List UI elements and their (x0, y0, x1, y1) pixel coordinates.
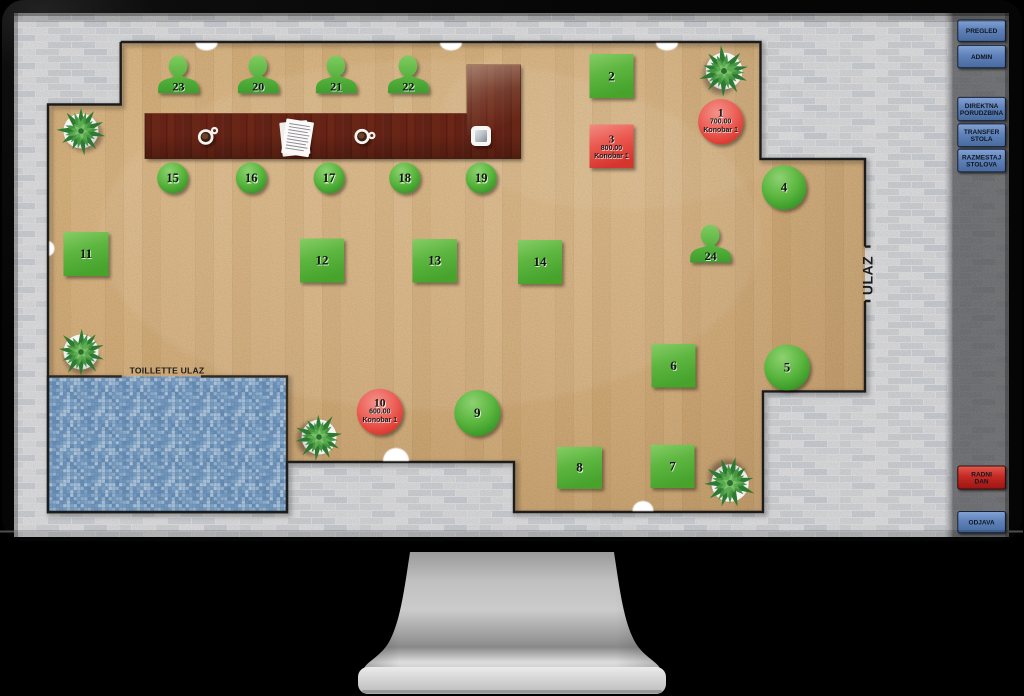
svg-text:8: 8 (576, 460, 583, 475)
svg-text:800.00: 800.00 (601, 145, 623, 152)
svg-text:RAZMESTAJ: RAZMESTAJ (962, 154, 1002, 161)
svg-text:STOLA: STOLA (971, 136, 993, 143)
svg-text:ULAZ: ULAZ (860, 256, 876, 295)
svg-text:18: 18 (398, 171, 411, 185)
svg-text:PORUDZBINA: PORUDZBINA (960, 110, 1004, 117)
svg-text:Konobar 1: Konobar 1 (703, 127, 738, 134)
svg-text:700.00: 700.00 (710, 118, 732, 125)
svg-text:TRANSFER: TRANSFER (964, 129, 1000, 136)
svg-text:19: 19 (475, 171, 488, 185)
svg-text:15: 15 (166, 171, 179, 185)
svg-text:3: 3 (609, 134, 615, 146)
svg-text:Konobar 1: Konobar 1 (594, 153, 629, 160)
svg-text:24: 24 (705, 249, 717, 263)
svg-text:17: 17 (323, 171, 336, 185)
svg-text:21: 21 (330, 80, 342, 94)
svg-text:9: 9 (474, 405, 481, 420)
svg-text:DAN: DAN (975, 478, 989, 485)
svg-text:PREGLED: PREGLED (966, 28, 998, 35)
svg-text:TOILLETTE ULAZ: TOILLETTE ULAZ (130, 366, 205, 376)
svg-text:Konobar 1: Konobar 1 (362, 417, 397, 424)
svg-text:ADMIN: ADMIN (971, 54, 993, 61)
svg-text:600.00: 600.00 (369, 408, 391, 415)
svg-text:6: 6 (670, 358, 677, 373)
svg-text:7: 7 (669, 458, 676, 473)
svg-text:22: 22 (402, 80, 414, 94)
svg-text:20: 20 (252, 80, 264, 94)
svg-text:ODJAVA: ODJAVA (969, 520, 995, 527)
svg-text:STOLOVA: STOLOVA (966, 161, 997, 168)
svg-text:DIREKTNA: DIREKTNA (965, 103, 999, 110)
svg-text:14: 14 (534, 254, 548, 269)
svg-text:4: 4 (781, 180, 788, 195)
svg-text:23: 23 (173, 80, 185, 94)
svg-text:RADNI: RADNI (971, 471, 992, 478)
svg-text:11: 11 (80, 246, 92, 261)
svg-text:12: 12 (316, 253, 329, 268)
svg-text:2: 2 (608, 69, 615, 84)
svg-text:5: 5 (784, 360, 791, 375)
svg-text:13: 13 (428, 253, 442, 268)
svg-text:16: 16 (245, 171, 258, 185)
